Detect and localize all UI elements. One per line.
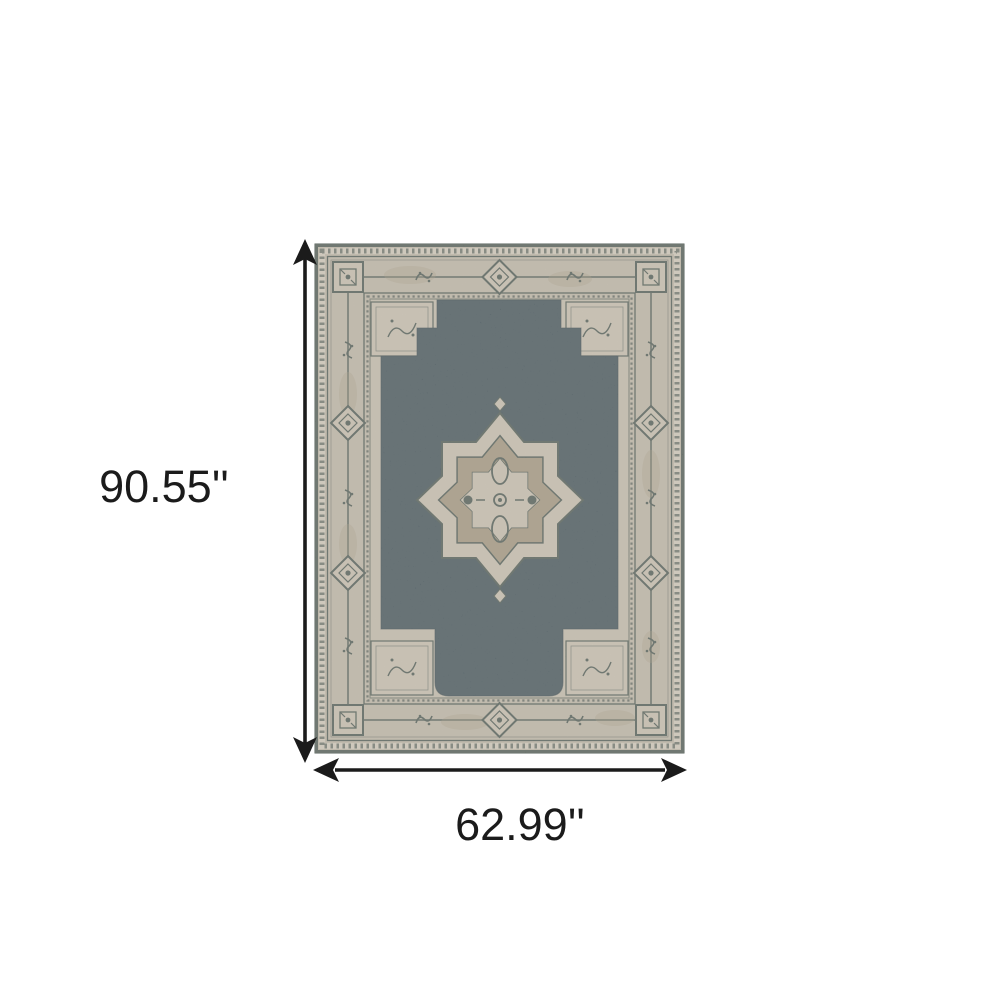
height-dimension-arrow-icon [293,239,317,763]
product-dimension-image: 90.55'' 62.99'' [0,0,1000,1000]
width-dimension-label: 62.99'' [450,802,590,847]
width-dimension-arrow-icon [313,758,687,782]
rug-photo [315,244,684,753]
height-dimension-label: 90.55'' [94,464,234,509]
rug-texture [315,244,684,753]
